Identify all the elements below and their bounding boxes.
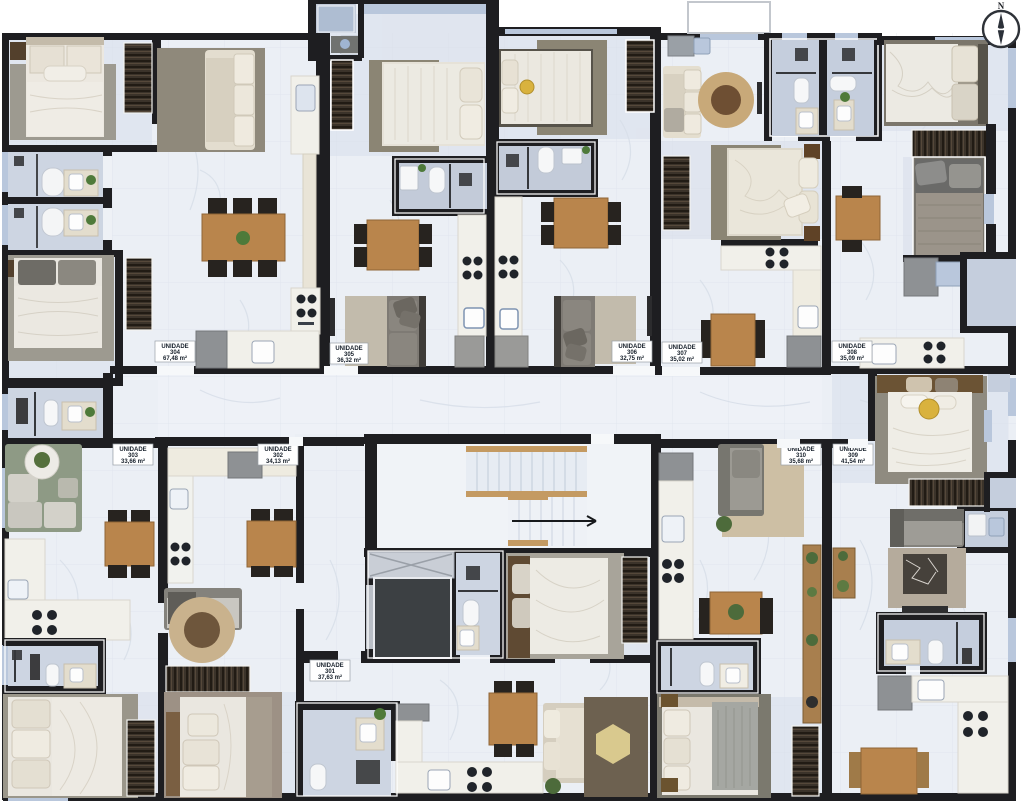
svg-text:35,09 m²: 35,09 m² [840, 355, 864, 362]
svg-text:N: N [998, 1, 1005, 11]
svg-text:34,13 m²: 34,13 m² [266, 458, 290, 465]
svg-text:67,48 m²: 67,48 m² [163, 355, 187, 362]
svg-text:33,66 m²: 33,66 m² [121, 458, 145, 465]
svg-text:37,63 m²: 37,63 m² [318, 674, 342, 681]
svg-text:32,75 m²: 32,75 m² [620, 355, 644, 362]
svg-text:41,54 m²: 41,54 m² [841, 458, 865, 465]
svg-text:35,68 m²: 35,68 m² [789, 458, 813, 465]
svg-text:36,32 m²: 36,32 m² [337, 357, 361, 364]
svg-text:35,02 m²: 35,02 m² [670, 356, 694, 363]
